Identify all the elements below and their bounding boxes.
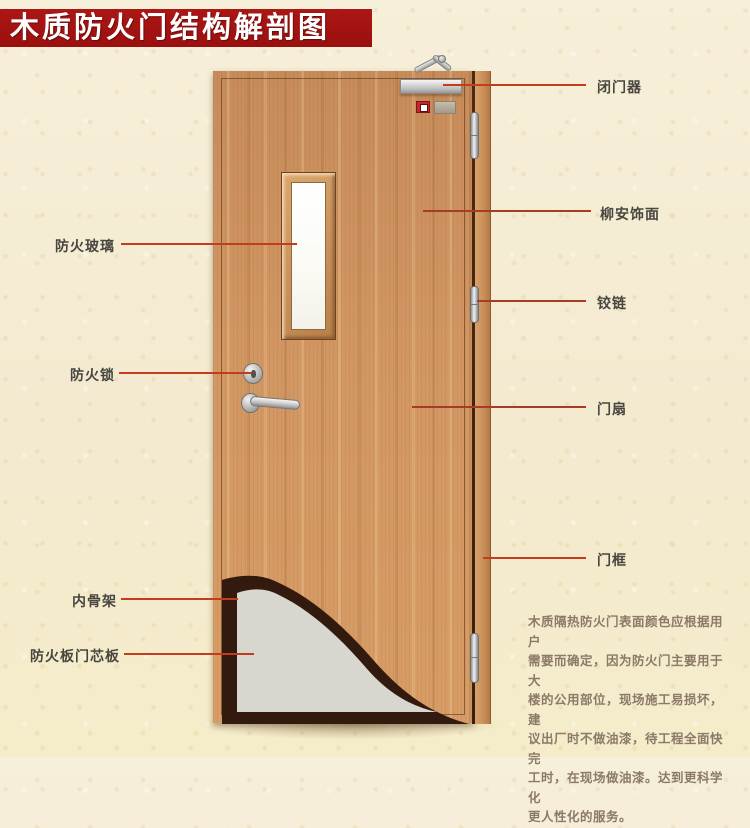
leader-line-door-frame — [483, 557, 586, 559]
leader-line-fire-lock — [119, 372, 251, 374]
leader-line-inner-skeleton — [121, 598, 238, 600]
fire-glass-pane — [291, 182, 326, 330]
leader-line-core-board — [124, 653, 254, 655]
description-note: 木质隔热防火门表面颜色应根据用户 需要而确定，因为防火门主要用于大 楼的公用部位… — [528, 613, 728, 828]
vision-panel-frame — [281, 172, 336, 340]
door-frame-graphic — [475, 71, 491, 724]
leader-line-door-closer — [443, 84, 586, 86]
leader-line-veneer — [423, 210, 591, 212]
hinge-middle-icon — [470, 286, 479, 323]
label-fire-lock: 防火锁 — [20, 365, 115, 385]
label-inner-skeleton: 内骨架 — [20, 591, 117, 611]
label-core-board: 防火板门芯板 — [10, 646, 120, 666]
label-fire-glass: 防火玻璃 — [20, 236, 115, 256]
cutaway-section-graphic — [213, 568, 474, 724]
label-hinge: 铰链 — [597, 293, 627, 313]
keyhole-icon — [251, 370, 256, 378]
leader-line-hinge — [477, 300, 586, 302]
alarm-indicator-icon — [416, 101, 430, 113]
label-door-leaf: 门扇 — [597, 399, 627, 419]
label-door-frame: 门框 — [597, 550, 627, 570]
junction-box-icon — [434, 101, 456, 114]
page-title: 木质防火门结构解剖图 — [0, 9, 372, 47]
leader-line-door-leaf — [412, 406, 586, 408]
fire-door-diagram: 木质防火门结构解剖图 防火玻璃 防火锁 内骨架 防火板门芯板 闭门器 — [0, 0, 750, 757]
hinge-top-icon — [470, 112, 479, 159]
door-closer-body-icon — [400, 79, 462, 94]
door-closer-joint-icon — [438, 55, 446, 63]
label-veneer: 柳安饰面 — [600, 204, 660, 224]
label-door-closer: 闭门器 — [597, 77, 642, 97]
leader-line-fire-glass — [121, 243, 297, 245]
